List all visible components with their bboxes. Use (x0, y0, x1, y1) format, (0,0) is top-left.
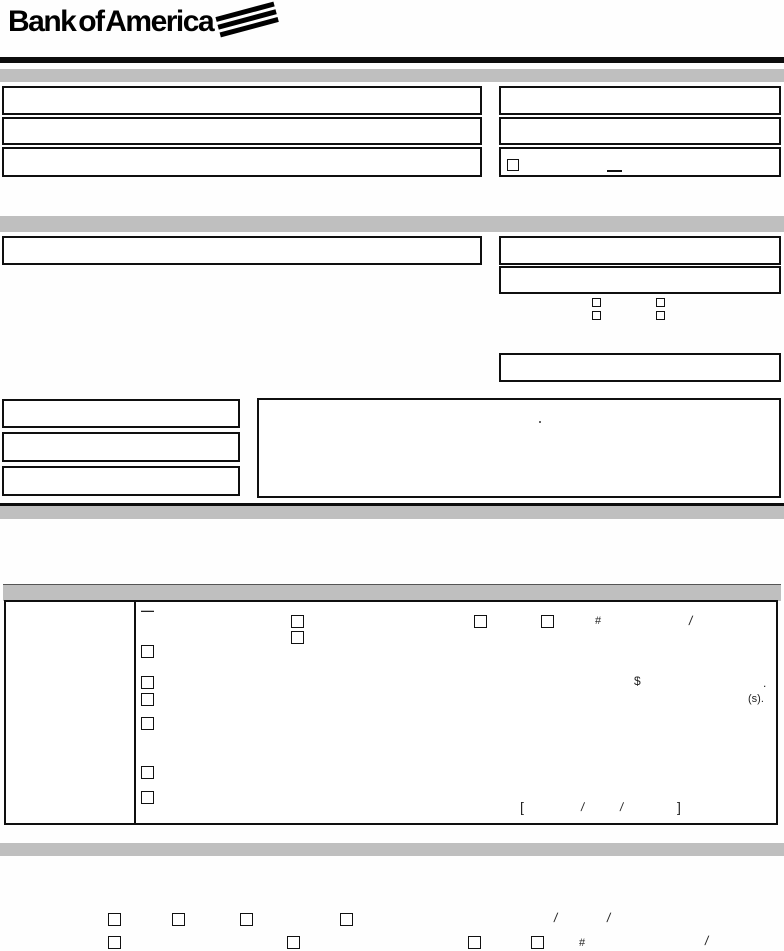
field-box[interactable] (2, 236, 482, 265)
checkbox[interactable] (108, 913, 121, 926)
scanned-form-page: Bank of America — # / (0, 0, 784, 951)
checkbox[interactable] (141, 717, 154, 730)
checkbox[interactable] (141, 693, 154, 706)
table-column-divider (134, 602, 136, 823)
blank-line (607, 170, 622, 172)
section3-bottom-bar (0, 506, 784, 519)
field-box[interactable] (2, 466, 240, 496)
slash-symbol: / (553, 911, 558, 924)
section2-header-bar (0, 216, 784, 232)
checkbox[interactable] (108, 936, 121, 949)
checkbox[interactable] (287, 936, 300, 949)
field-box[interactable] (2, 432, 240, 462)
checkbox[interactable] (291, 631, 304, 644)
field-box[interactable] (499, 86, 781, 115)
field-box[interactable] (499, 353, 781, 382)
dash-symbol: — (141, 604, 154, 617)
field-box[interactable] (2, 147, 482, 177)
slash-symbol: / (704, 934, 709, 947)
field-box[interactable] (2, 86, 482, 115)
checkbox[interactable] (340, 913, 353, 926)
field-box[interactable] (499, 117, 781, 145)
checkbox[interactable] (141, 766, 154, 779)
checkbox[interactable] (592, 298, 601, 307)
checkbox[interactable] (541, 615, 554, 628)
section1-header-bar (0, 69, 784, 82)
open-bracket-symbol: [ (520, 800, 524, 814)
close-bracket-symbol: ] (677, 800, 681, 814)
field-box[interactable] (2, 117, 482, 145)
field-box[interactable] (499, 236, 781, 265)
checkbox[interactable] (141, 676, 154, 689)
field-box[interactable] (499, 147, 781, 177)
dollar-symbol: $ (634, 675, 641, 687)
checkbox[interactable] (141, 791, 154, 804)
table-header-bar (3, 584, 781, 601)
checkbox[interactable] (468, 936, 481, 949)
period-symbol: . (763, 677, 766, 689)
field-box[interactable] (499, 266, 781, 294)
options-table (4, 600, 778, 825)
checkbox[interactable] (172, 913, 185, 926)
checkbox[interactable] (240, 913, 253, 926)
checkbox[interactable] (592, 311, 601, 320)
field-box[interactable] (2, 399, 240, 428)
number-sign-symbol: # (579, 938, 585, 949)
checkbox[interactable] (141, 645, 154, 658)
bank-of-america-logo: Bank of America (8, 5, 213, 39)
checkbox[interactable] (507, 159, 519, 171)
stray-dot (539, 421, 541, 423)
checkbox[interactable] (531, 936, 544, 949)
slash-symbol: / (606, 911, 611, 924)
plural-s-suffix: (s). (748, 694, 764, 705)
header-rule (0, 57, 784, 63)
comment-box[interactable] (257, 398, 781, 498)
section5-header-bar (0, 843, 784, 856)
checkbox[interactable] (656, 298, 665, 307)
checkbox[interactable] (656, 311, 665, 320)
number-sign-symbol: # (595, 616, 601, 627)
checkbox[interactable] (291, 615, 304, 628)
bank-of-america-flag-icon (214, 0, 280, 43)
checkbox[interactable] (474, 615, 487, 628)
